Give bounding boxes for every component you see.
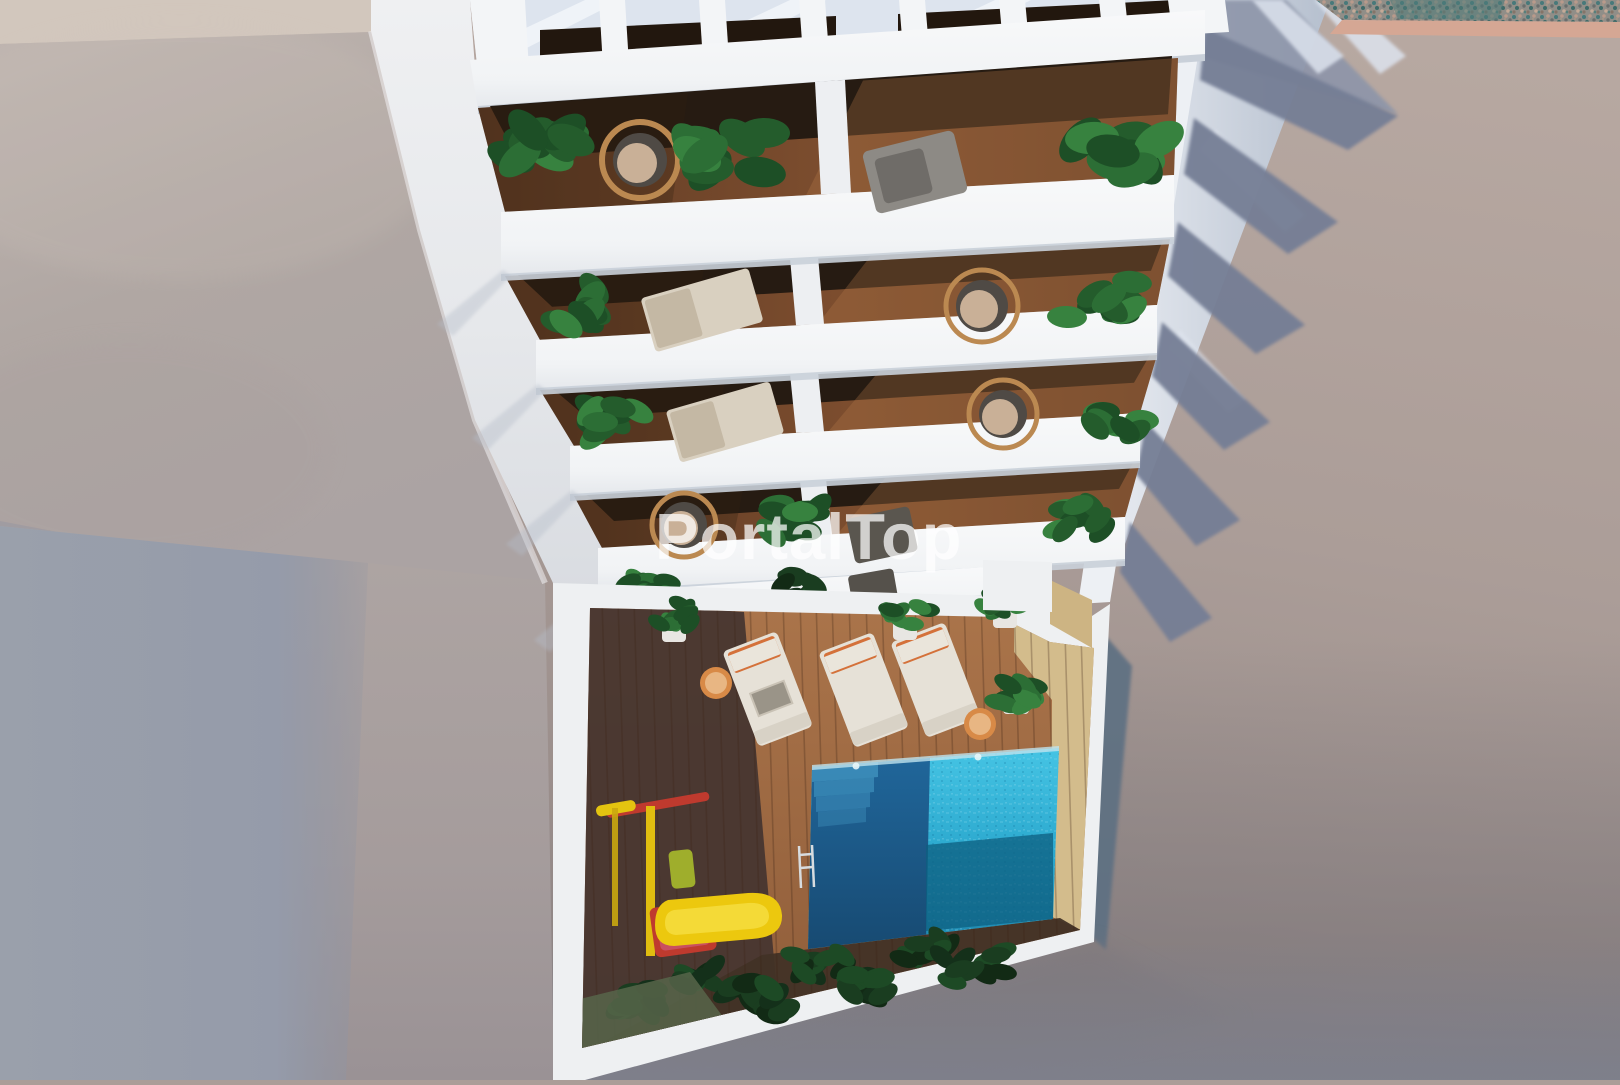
svg-text:PortalTop: PortalTop xyxy=(655,500,963,573)
